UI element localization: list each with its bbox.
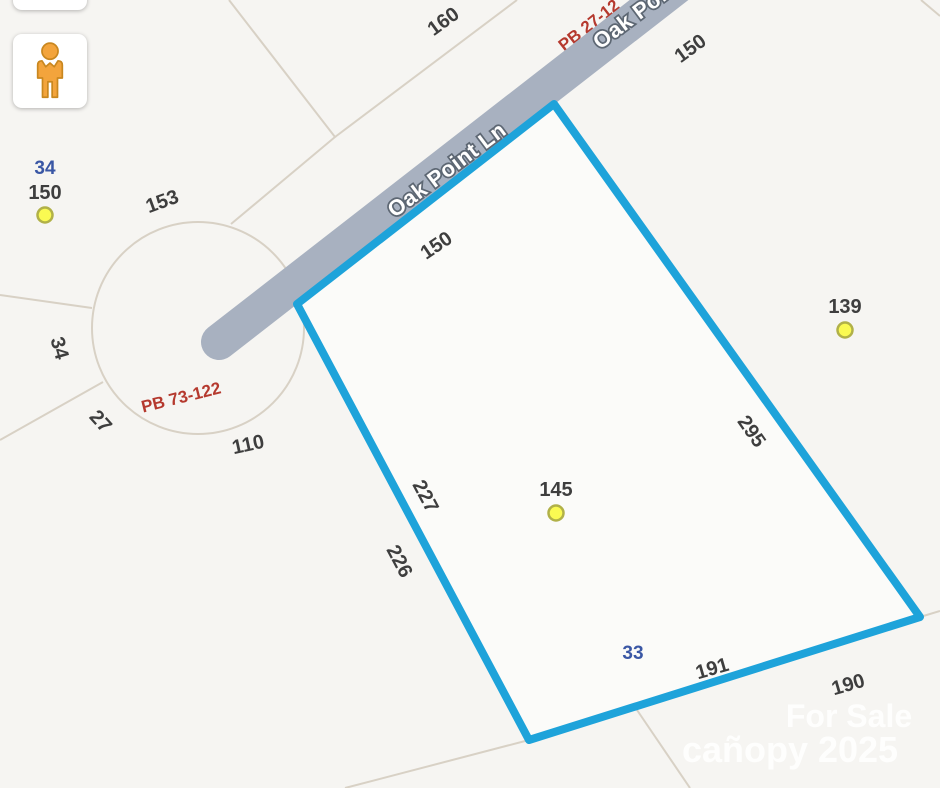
dim-label-190: 190 (829, 670, 867, 700)
map-control-partial-button[interactable] (13, 0, 87, 10)
dim-label-150-upper: 150 (671, 30, 711, 67)
dim-label-110: 110 (230, 431, 266, 459)
address-point-dot-selected (549, 506, 564, 521)
street-view-pegman-button[interactable] (13, 34, 87, 108)
dim-label-139: 139 (828, 296, 861, 318)
pegman-icon (28, 41, 72, 101)
dim-label-153: 153 (143, 186, 182, 218)
dim-label-160: 160 (424, 3, 464, 40)
map-canvas[interactable]: PB 27-12 Oak Point Ln Oak Point Ln 160 1… (0, 0, 940, 788)
dim-label-34-side: 34 (45, 335, 73, 363)
parcel-id-label-34: 34 (34, 158, 56, 179)
parcel-id-label-33: 33 (622, 643, 643, 664)
parcel-line-west-lower (0, 382, 103, 440)
plat-ref-label-culdesac: PB 73-122 (139, 378, 222, 416)
dim-label-226: 226 (382, 542, 417, 582)
address-point-dot-east (838, 323, 853, 338)
dim-label-27: 27 (85, 406, 116, 437)
address-point-dot-west (38, 208, 53, 223)
dim-label-145: 145 (539, 479, 572, 501)
watermark-canopy: cañopy 2025 (682, 729, 898, 770)
dim-label-150-west: 150 (28, 182, 61, 204)
parcel-line-west-upper (0, 295, 92, 308)
parcel-line-northwest (229, 0, 335, 224)
parcel-map[interactable]: PB 27-12 Oak Point Ln Oak Point Ln 160 1… (0, 0, 940, 788)
parcel-line-northeast-corner (921, 0, 940, 16)
parcel-line-southwest (345, 740, 529, 788)
